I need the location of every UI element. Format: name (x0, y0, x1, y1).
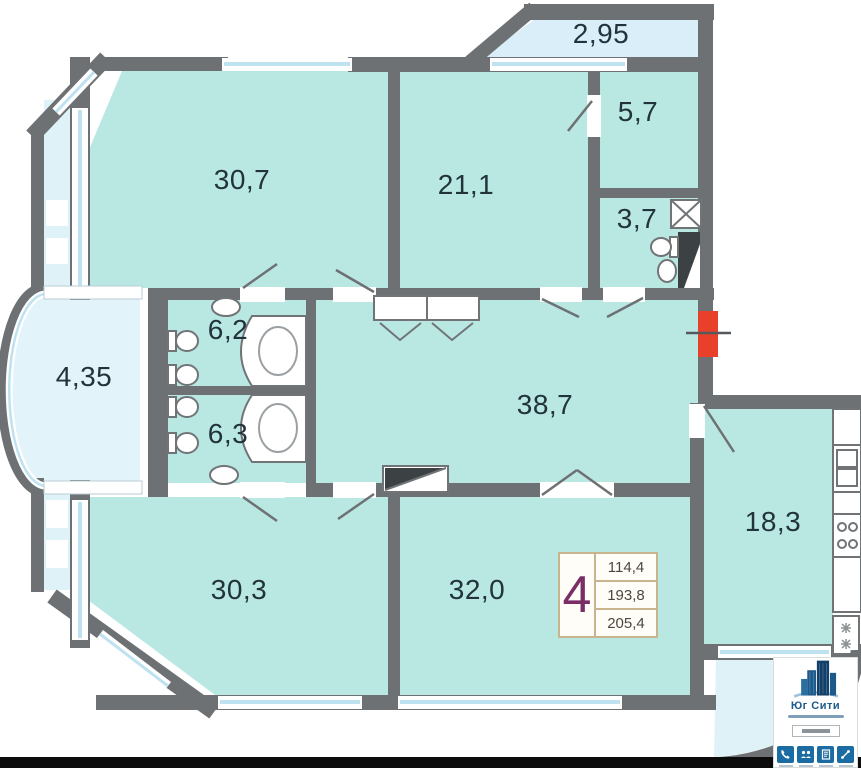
stamp-living-area: 114,4 (596, 554, 656, 582)
link-icon-caption-bar (839, 765, 853, 767)
room-area-label-30-3: 30,3 (211, 576, 268, 604)
sink (210, 466, 238, 484)
room-area-label-18-3: 18,3 (745, 508, 802, 536)
bottom-black-bar (0, 757, 861, 768)
developer-info-button-text-bar (802, 729, 830, 733)
room-area-label-30-7: 30,7 (214, 166, 271, 194)
toilet-bowl (651, 238, 671, 256)
room-floor-5-7 (600, 71, 698, 188)
room-area-label-32-0: 32,0 (449, 576, 506, 604)
developer-subtitle-bar (788, 715, 844, 718)
bidet-bowl (176, 365, 198, 385)
developer-building-logo-icon (787, 658, 845, 700)
link-icon[interactable] (837, 746, 854, 763)
toilet-tank (168, 397, 176, 417)
kitchen-sink (837, 450, 857, 467)
bidet-tank (168, 365, 176, 385)
toilet-bowl (176, 397, 198, 417)
room-area-label-21-1: 21,1 (438, 171, 495, 199)
bidet-bowl (176, 433, 198, 453)
phone-icon[interactable] (777, 746, 794, 763)
people-icon[interactable] (797, 746, 814, 763)
room-area-label-6-3: 6,3 (208, 420, 248, 448)
room-floor-38-7 (315, 300, 698, 483)
room-area-label-38-7: 38,7 (517, 391, 574, 419)
stamp-rooms-count: 4 (560, 554, 594, 636)
room-area-label-5-7: 5,7 (618, 98, 658, 126)
developer-name: Юг Сити (791, 701, 840, 712)
bidet-tank (168, 433, 176, 453)
apartment-stamp: 4 114,4 193,8 205,4 (558, 552, 658, 638)
people-icon-caption-bar (799, 765, 813, 767)
room-area-label-3-7: 3,7 (617, 205, 657, 233)
floorplan-drawing (0, 0, 861, 768)
toilet-tank (168, 331, 176, 351)
stamp-area: 193,8 (596, 582, 656, 610)
toilet-bowl (176, 331, 198, 351)
room-area-label-2-95: 2,95 (573, 20, 630, 48)
stamp-area-rows: 114,4 193,8 205,4 (594, 554, 656, 636)
developer-info-button[interactable] (792, 725, 840, 737)
developer-logo-card: Юг Сити (773, 657, 858, 768)
wardrobe (374, 296, 427, 320)
document-icon[interactable] (817, 746, 834, 763)
room-area-label-4-35: 4,35 (56, 363, 113, 391)
phone-icon-caption-bar (779, 765, 793, 767)
room-area-label-6-2: 6,2 (208, 316, 248, 344)
stamp-total-area: 205,4 (596, 610, 656, 636)
floorplan-canvas: 30,7 21,1 5,7 3,7 2,95 4,35 6,2 6,3 38,7… (0, 0, 861, 768)
sink (658, 260, 676, 282)
contact-icons-row (777, 746, 854, 767)
kitchen-counter (833, 409, 861, 612)
document-icon-caption-bar (819, 765, 833, 767)
